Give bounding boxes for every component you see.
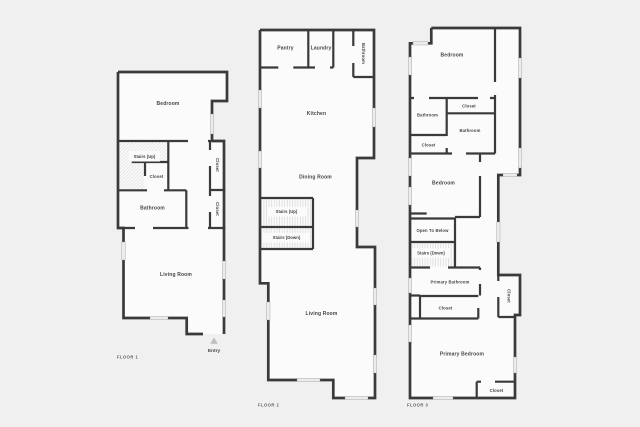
room-label-closet-bottom: Closet bbox=[490, 388, 504, 393]
window bbox=[518, 148, 521, 168]
window bbox=[373, 355, 376, 373]
room-label-bathroom: Bathroom bbox=[140, 205, 165, 211]
floor-2-plan: Pantry Laundry Bathroom Kitchen Dining R… bbox=[258, 30, 377, 408]
room-label-pantry: Pantry bbox=[277, 45, 294, 51]
window bbox=[150, 316, 168, 319]
window bbox=[408, 278, 411, 293]
window bbox=[497, 222, 500, 242]
window bbox=[373, 288, 376, 305]
room-label-stairs-up: Stairs (Up) bbox=[276, 209, 298, 214]
floor-plan-canvas: Bedroom Stairs (Up) Closet Closet Bathro… bbox=[0, 0, 640, 427]
room-label-closet-upper: Closet bbox=[215, 158, 220, 172]
window bbox=[433, 396, 453, 399]
stairs-hatch bbox=[120, 143, 145, 190]
window bbox=[372, 108, 375, 127]
room-label-bedroom-middle: Bedroom bbox=[432, 180, 455, 186]
room-label-dining-room: Dining Room bbox=[299, 174, 332, 180]
floor-3-plan: Bedroom Closet Bathroom Bathroom Closet … bbox=[407, 28, 522, 408]
room-label-stairs-down: Stairs (Down) bbox=[417, 251, 445, 256]
window bbox=[513, 357, 516, 373]
window bbox=[267, 302, 270, 320]
room-label-living-room: Living Room bbox=[160, 272, 192, 278]
window bbox=[222, 300, 225, 317]
entry-label: Entry bbox=[208, 348, 221, 354]
room-label-primary-bedroom: Primary Bedroom bbox=[440, 351, 485, 357]
window bbox=[210, 114, 213, 134]
window bbox=[413, 42, 428, 45]
room-label-closet-right: Closet bbox=[506, 289, 511, 303]
window bbox=[345, 396, 368, 399]
room-label-closet-top: Closet bbox=[462, 103, 476, 108]
room-label-stairs-down: Stairs (Down) bbox=[273, 235, 301, 240]
room-label-closet-middle: Closet bbox=[439, 305, 453, 310]
floor-caption: FLOOR 3 bbox=[407, 403, 428, 408]
room-label-bathroom-left: Bathroom bbox=[417, 112, 438, 117]
window bbox=[408, 187, 411, 205]
window bbox=[518, 58, 521, 78]
window bbox=[503, 173, 517, 176]
room-label-laundry: Laundry bbox=[311, 45, 332, 51]
floor-caption: FLOOR 1 bbox=[117, 355, 138, 360]
window bbox=[122, 242, 125, 260]
window bbox=[408, 57, 411, 75]
window bbox=[258, 90, 261, 108]
room-label-bedroom: Bedroom bbox=[157, 101, 180, 107]
room-label-closet-left: Closet bbox=[422, 142, 436, 147]
room-label-bedroom-top: Bedroom bbox=[441, 52, 464, 58]
floor-1-plan: Bedroom Stairs (Up) Closet Closet Bathro… bbox=[117, 72, 227, 360]
room-label-closet: Closet bbox=[150, 174, 164, 179]
room-label-primary-bathroom: Primary Bathroom bbox=[431, 279, 470, 284]
room-label-open-to-below: Open To Below bbox=[416, 228, 449, 233]
window bbox=[408, 325, 411, 342]
room-label-closet-lower: Closet bbox=[215, 202, 220, 216]
floor-caption: FLOOR 2 bbox=[258, 403, 279, 408]
room-label-living-room: Living Room bbox=[306, 311, 338, 317]
window bbox=[408, 158, 411, 176]
floor-plan-page: { "colors": { "bg": "#f0f0f1", "room": "… bbox=[0, 0, 640, 427]
room-label-kitchen: Kitchen bbox=[307, 111, 326, 117]
room-label-stairs-up: Stairs (Up) bbox=[134, 154, 156, 159]
window bbox=[355, 210, 358, 227]
window bbox=[222, 261, 225, 279]
window bbox=[258, 151, 261, 168]
window bbox=[297, 378, 320, 381]
entry-arrow-icon bbox=[210, 338, 218, 344]
room-label-bathroom-right: Bathroom bbox=[460, 128, 481, 133]
room-label-bathroom: Bathroom bbox=[361, 43, 366, 64]
